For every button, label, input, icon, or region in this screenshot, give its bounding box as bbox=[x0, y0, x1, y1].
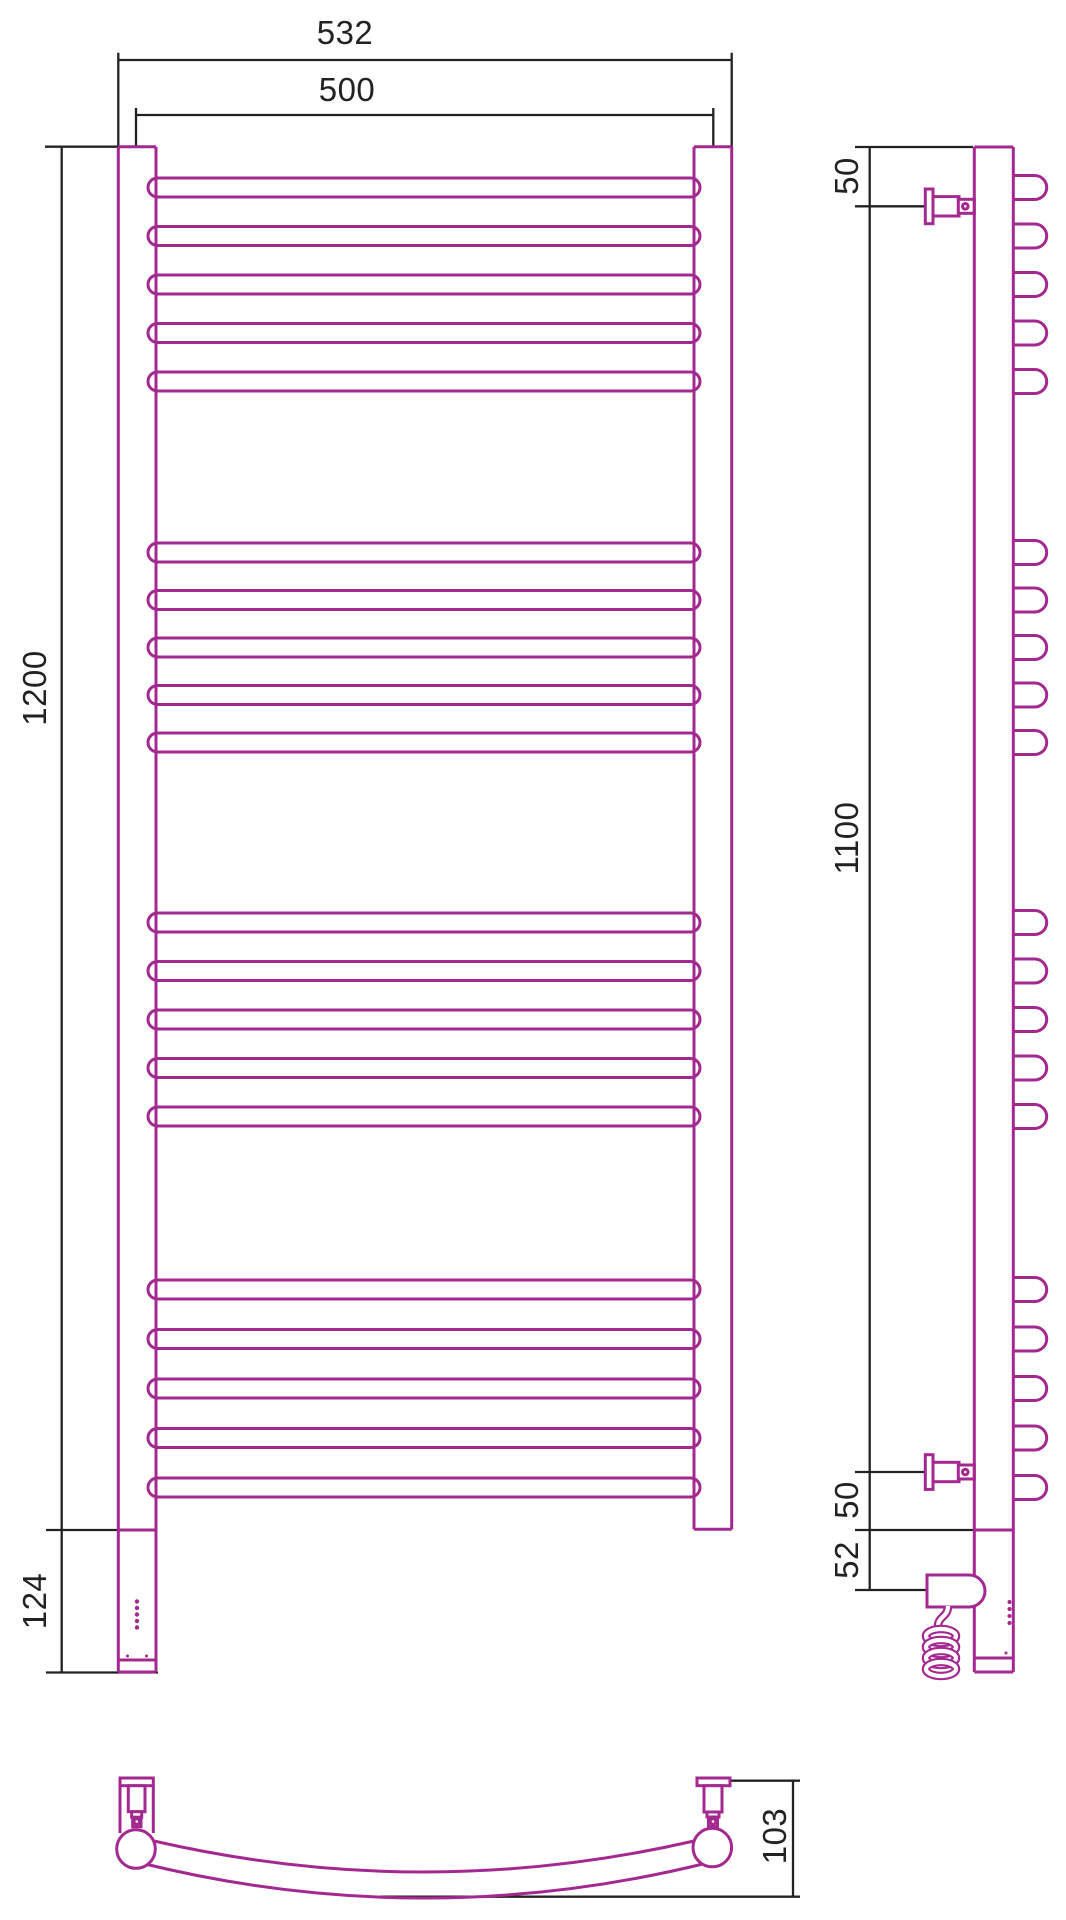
top-view-wall-brackets bbox=[120, 1778, 730, 1833]
side-view-collector bbox=[974, 147, 1013, 1672]
side-view-heating-element bbox=[927, 1575, 985, 1607]
drawing-canvas: 532 500 1200 124 50 1100 50 52 103 bbox=[0, 0, 1066, 1920]
side-view-power-cable-coil bbox=[926, 1606, 956, 1676]
dim-side-element-offset: 52 bbox=[828, 1541, 865, 1579]
side-view-rung-ends bbox=[1013, 176, 1046, 1500]
dim-front-lower-section: 124 bbox=[16, 1573, 53, 1630]
side-view-indicator-leds bbox=[1005, 1600, 1012, 1655]
technical-drawing: 532 500 1200 124 50 1100 50 52 103 bbox=[0, 0, 1066, 1920]
dim-side-bottom-bracket-offset: 50 bbox=[828, 1481, 865, 1519]
dim-front-height: 1200 bbox=[16, 650, 53, 725]
front-view-rungs bbox=[148, 178, 700, 1497]
dim-front-axis-width: 500 bbox=[319, 71, 376, 108]
front-view-indicator-leds bbox=[126, 1599, 148, 1657]
dim-front-overall-width: 532 bbox=[317, 14, 374, 51]
dim-side-bracket-span: 1100 bbox=[828, 802, 865, 875]
dim-side-top-bracket-offset: 50 bbox=[828, 157, 865, 195]
top-view-tube-ends bbox=[117, 1828, 732, 1868]
dim-top-depth: 103 bbox=[756, 1808, 793, 1865]
side-view-wall-brackets bbox=[925, 189, 974, 1489]
top-view-curved-rail bbox=[141, 1841, 707, 1898]
